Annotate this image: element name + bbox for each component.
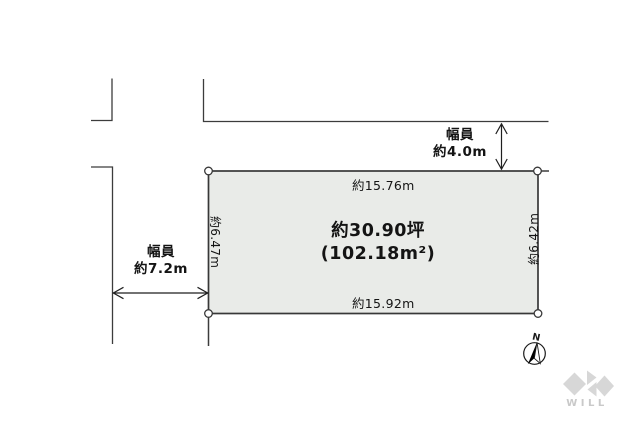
- road-width-label-top: 幅員 約4.0m: [427, 127, 493, 161]
- compass-n-label: N: [531, 332, 541, 344]
- road-width-label-left: 幅員 約7.2m: [127, 244, 195, 278]
- road-edge-line-southwest-side: [91, 167, 113, 344]
- corner-marker-bottom-right: [534, 310, 542, 318]
- diagram-canvas: N: [0, 0, 640, 427]
- corner-marker-bottom-left: [205, 310, 213, 318]
- parcel-area-sqm: (102.18m²): [283, 243, 473, 266]
- road-width-label-left-line1: 幅員: [127, 244, 195, 261]
- width-arrow-left-icon: [113, 287, 207, 298]
- road-edge-line-north-side: [204, 79, 549, 122]
- width-arrow-top-icon: [496, 124, 507, 170]
- dimension-label-top: 約15.76m: [352, 175, 415, 194]
- logo-triangle-lower: [588, 382, 597, 397]
- parcel-area-tsubo: 約30.90坪: [283, 220, 473, 243]
- road-edge-line-northwest-corner: [91, 79, 112, 121]
- logo-diamond-right: [595, 376, 614, 397]
- compass-icon: N: [524, 332, 546, 365]
- road-width-label-left-line2: 約7.2m: [127, 261, 195, 278]
- dimension-label-bottom: 約15.92m: [352, 293, 415, 312]
- dimension-label-right: 約6.42m: [525, 213, 542, 265]
- corner-marker-top-right: [534, 167, 542, 175]
- corner-marker-top-left: [205, 167, 213, 175]
- parcel-area-label: 約30.90坪 (102.18m²): [283, 220, 473, 265]
- road-width-label-top-line2: 約4.0m: [427, 144, 493, 161]
- road-width-label-top-line1: 幅員: [427, 127, 493, 144]
- will-logo-icon: [563, 371, 614, 397]
- logo-text: WILL: [562, 398, 612, 409]
- logo-triangle-upper: [587, 371, 597, 386]
- logo-diamond-left: [563, 373, 586, 396]
- land-plot-diagram: N 幅員 約4.0m 幅員 約7.2m 約15.76m 約15.92m 約6.4…: [0, 0, 640, 427]
- dimension-label-left: 約6.47m: [207, 216, 224, 268]
